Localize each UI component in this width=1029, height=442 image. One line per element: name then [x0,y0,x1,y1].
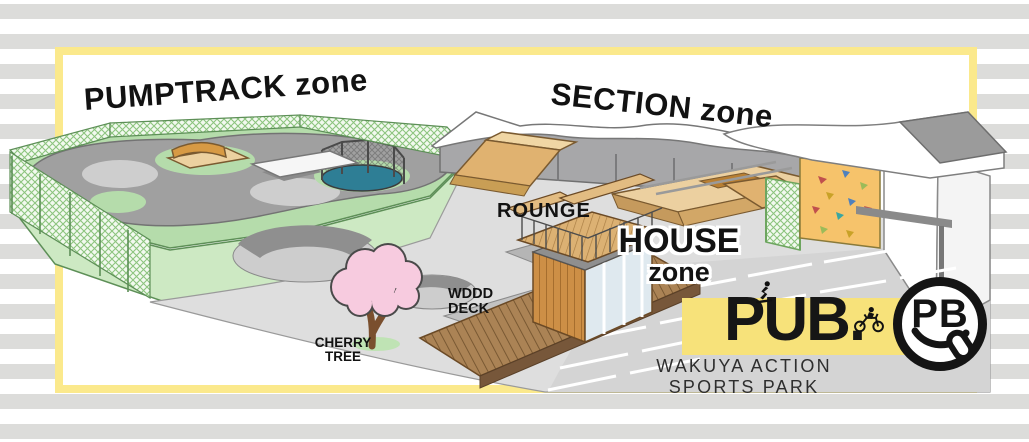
house-zone-label-line2: zone [594,259,764,287]
cherry-tree-label-line1: CHERRY [303,336,383,350]
smiley-mouth-icon [902,286,978,362]
bmx-rider-icon [853,305,885,333]
striped-background: PUMPTRACK zone SECTION zone ROUNGE HOUSE… [0,0,1029,442]
pb-smiley-badge-icon: PB [893,277,987,371]
wood-deck-label: WDDD DECK [448,287,493,317]
logo-text: PUB. [724,289,864,351]
track-pocket [82,160,158,188]
wood-deck-label-line1: WDDD [448,287,493,302]
cherry-tree-label: CHERRY TREE [303,336,383,364]
rounge-label: ROUNGE [497,200,591,223]
wood-deck-label-line2: DECK [448,302,493,317]
house-zone-label: HOUSE zone [594,224,764,286]
cherry-tree-label-line2: TREE [303,350,383,364]
skateboarder-icon [751,280,777,306]
house-zone-label-line1: HOUSE [594,224,764,259]
park-name: WAKUYA ACTION SPORTS PARK [610,356,878,398]
climbing-wall [800,158,880,248]
